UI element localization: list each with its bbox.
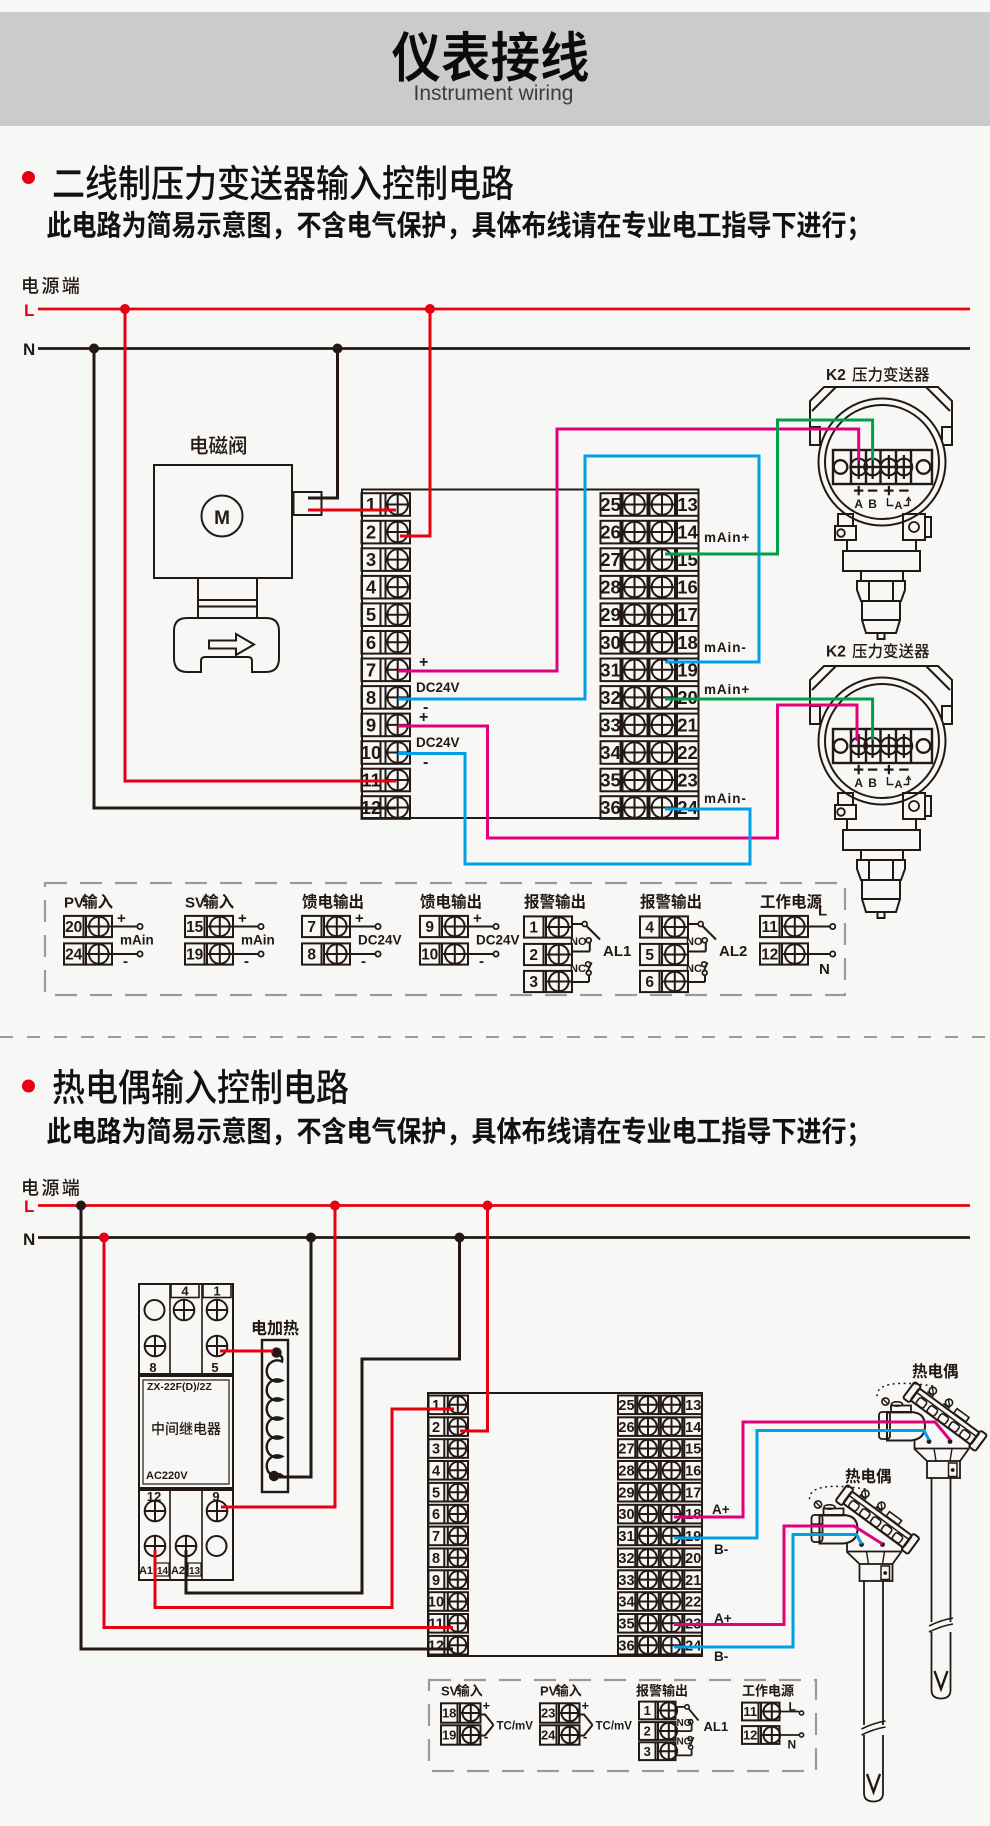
svg-text:11: 11 [743, 1704, 757, 1719]
svg-text:3: 3 [529, 974, 538, 991]
svg-text:SV: SV [185, 895, 205, 912]
svg-text:10: 10 [361, 742, 382, 763]
svg-text:36: 36 [618, 1638, 634, 1654]
svg-text:1: 1 [529, 920, 538, 937]
svg-text:-: - [361, 953, 366, 970]
svg-text:36: 36 [600, 797, 621, 818]
svg-text:8: 8 [366, 687, 376, 708]
svg-text:N: N [788, 1738, 797, 1752]
svg-text:3: 3 [432, 1442, 440, 1458]
svg-text:20: 20 [65, 919, 82, 936]
svg-text:20: 20 [685, 1551, 701, 1567]
svg-text:-: - [244, 953, 249, 970]
svg-text:AL2: AL2 [719, 943, 747, 960]
svg-text:B: B [868, 497, 877, 511]
svg-text:+: + [473, 910, 482, 927]
svg-text:30: 30 [600, 632, 621, 653]
svg-text:A: A [854, 497, 863, 511]
svg-text:3: 3 [644, 1744, 651, 1759]
svg-text:L: L [818, 903, 827, 920]
svg-text:19: 19 [186, 947, 204, 964]
svg-text:NC: NC [570, 963, 586, 975]
svg-text:8: 8 [149, 1360, 156, 1375]
svg-text:6: 6 [645, 974, 654, 991]
svg-text:4: 4 [181, 1284, 189, 1299]
svg-text:31: 31 [618, 1529, 634, 1545]
svg-text:B-: B- [714, 1542, 728, 1557]
svg-text:15: 15 [685, 1442, 701, 1458]
svg-text:7: 7 [307, 919, 316, 936]
svg-text:34: 34 [618, 1595, 634, 1611]
svg-text:2: 2 [366, 522, 376, 543]
svg-text:22: 22 [677, 742, 698, 763]
svg-text:11: 11 [762, 919, 779, 936]
svg-text:21: 21 [685, 1573, 701, 1589]
svg-text:12: 12 [761, 947, 778, 964]
svg-text:17: 17 [677, 604, 698, 625]
svg-text:+: + [355, 910, 364, 927]
svg-text:mAin: mAin [120, 933, 154, 948]
svg-text:2: 2 [432, 1420, 440, 1436]
svg-text:16: 16 [677, 577, 698, 598]
svg-text:DC24V: DC24V [358, 933, 402, 948]
svg-text:35: 35 [618, 1617, 634, 1633]
svg-text:23: 23 [541, 1706, 555, 1721]
svg-text:DC24V: DC24V [416, 680, 460, 695]
svg-text:20: 20 [677, 687, 698, 708]
svg-text:8: 8 [432, 1551, 440, 1567]
svg-text:AC220V: AC220V [146, 1470, 188, 1482]
svg-text:18: 18 [685, 1507, 701, 1523]
svg-text:35: 35 [600, 770, 621, 791]
svg-text:15: 15 [186, 919, 204, 936]
svg-text:N: N [819, 961, 830, 978]
svg-text:5: 5 [366, 604, 376, 625]
svg-text:2: 2 [644, 1724, 651, 1739]
svg-text:32: 32 [600, 687, 621, 708]
svg-text:12: 12 [743, 1728, 757, 1743]
svg-text:mAin+: mAin+ [704, 530, 750, 545]
svg-text:1: 1 [213, 1284, 220, 1299]
svg-text:AL1: AL1 [704, 1719, 729, 1734]
svg-text:-: - [484, 1729, 488, 1744]
svg-text:26: 26 [618, 1420, 634, 1436]
svg-text:14: 14 [157, 1566, 169, 1577]
svg-text:5: 5 [432, 1485, 440, 1501]
svg-text:19: 19 [442, 1728, 456, 1743]
svg-text:28: 28 [600, 577, 621, 598]
svg-text:25: 25 [600, 494, 621, 515]
svg-text:-: - [423, 754, 428, 771]
svg-text:A2: A2 [171, 1565, 185, 1577]
svg-text:9: 9 [366, 714, 376, 735]
svg-text:28: 28 [618, 1464, 634, 1480]
svg-text:L: L [789, 1700, 796, 1714]
svg-text:13: 13 [189, 1566, 201, 1577]
svg-text:8: 8 [307, 947, 316, 964]
svg-text:Instrument wiring: Instrument wiring [414, 82, 574, 105]
svg-text:7: 7 [366, 659, 376, 680]
svg-text:2: 2 [529, 947, 538, 964]
svg-text:+: + [238, 910, 247, 927]
svg-text:31: 31 [600, 659, 621, 680]
svg-text:M: M [214, 508, 230, 529]
svg-text:11: 11 [428, 1617, 443, 1633]
svg-text:-: - [479, 953, 484, 970]
svg-text:29: 29 [600, 604, 621, 625]
svg-text:4: 4 [645, 920, 654, 937]
svg-text:A1: A1 [139, 1565, 153, 1577]
svg-text:12: 12 [428, 1638, 444, 1654]
svg-text:26: 26 [600, 522, 621, 543]
svg-text:1: 1 [432, 1398, 440, 1414]
svg-text:TC/mV: TC/mV [497, 1721, 534, 1733]
svg-text:22: 22 [685, 1595, 701, 1611]
svg-text:13: 13 [685, 1398, 701, 1414]
svg-text:7: 7 [432, 1529, 440, 1545]
svg-text:A: A [895, 779, 903, 791]
svg-text:SV: SV [441, 1684, 459, 1699]
svg-text:NC: NC [686, 963, 702, 975]
svg-text:5: 5 [211, 1360, 218, 1375]
svg-text:4: 4 [366, 577, 377, 598]
svg-text:ZX-22F(D)/2Z: ZX-22F(D)/2Z [147, 1381, 212, 1393]
svg-text:+: + [483, 1698, 491, 1713]
svg-text:16: 16 [685, 1464, 701, 1480]
svg-text:30: 30 [618, 1507, 634, 1523]
svg-text:L: L [24, 301, 34, 320]
svg-text:L: L [24, 1197, 34, 1216]
svg-text:NO: NO [686, 936, 703, 948]
svg-text:mAin-: mAin- [704, 640, 747, 655]
svg-text:29: 29 [618, 1485, 634, 1501]
svg-text:27: 27 [600, 549, 621, 570]
svg-text:9: 9 [432, 1573, 440, 1589]
svg-text:10: 10 [428, 1595, 444, 1611]
svg-text:1: 1 [644, 1703, 651, 1718]
svg-text:14: 14 [685, 1420, 701, 1436]
svg-text:A: A [854, 776, 863, 790]
svg-text:6: 6 [432, 1507, 440, 1523]
svg-text:34: 34 [600, 742, 621, 763]
svg-text:K2: K2 [826, 367, 846, 384]
svg-text:15: 15 [677, 549, 698, 570]
svg-text:DC24V: DC24V [416, 735, 460, 750]
svg-text:mAin: mAin [241, 933, 275, 948]
svg-text:17: 17 [685, 1485, 701, 1501]
svg-text:24: 24 [65, 947, 83, 964]
svg-text:+: + [117, 910, 126, 927]
svg-text:27: 27 [618, 1442, 634, 1458]
svg-text:18: 18 [677, 632, 698, 653]
svg-text:B: B [868, 776, 877, 790]
svg-text:mAin+: mAin+ [704, 682, 750, 697]
svg-text:mAin-: mAin- [704, 791, 747, 806]
svg-text:B-: B- [714, 1649, 728, 1664]
svg-text:AL1: AL1 [603, 943, 631, 960]
svg-text:N: N [23, 340, 35, 359]
svg-text:3: 3 [366, 549, 376, 570]
svg-text:18: 18 [442, 1706, 456, 1721]
svg-text:33: 33 [600, 714, 621, 735]
svg-text:K2: K2 [826, 644, 846, 661]
svg-text:1: 1 [366, 494, 376, 515]
svg-text:24: 24 [541, 1728, 556, 1743]
svg-text:4: 4 [432, 1464, 440, 1480]
svg-text:-: - [123, 953, 128, 970]
svg-text:TC/mV: TC/mV [596, 1721, 633, 1733]
svg-text:NO: NO [570, 936, 587, 948]
svg-text:5: 5 [645, 947, 654, 964]
svg-text:PV: PV [64, 895, 84, 912]
svg-text:23: 23 [677, 770, 698, 791]
svg-text:9: 9 [425, 919, 434, 936]
svg-text:PV: PV [540, 1684, 558, 1699]
svg-text:33: 33 [618, 1573, 634, 1589]
svg-text:DC24V: DC24V [476, 933, 520, 948]
svg-text:13: 13 [677, 494, 698, 515]
svg-text:+: + [419, 654, 428, 671]
svg-text:14: 14 [677, 522, 698, 543]
svg-text:+: + [582, 1698, 590, 1713]
svg-text:32: 32 [618, 1551, 634, 1567]
svg-text:6: 6 [366, 632, 376, 653]
svg-text:A+: A+ [712, 1502, 730, 1517]
svg-text:10: 10 [421, 947, 438, 964]
svg-text:25: 25 [618, 1398, 634, 1414]
svg-text:-: - [583, 1729, 587, 1744]
svg-text:+: + [419, 709, 428, 726]
svg-text:N: N [23, 1230, 35, 1249]
svg-text:21: 21 [677, 714, 698, 735]
svg-text:A: A [895, 500, 903, 512]
